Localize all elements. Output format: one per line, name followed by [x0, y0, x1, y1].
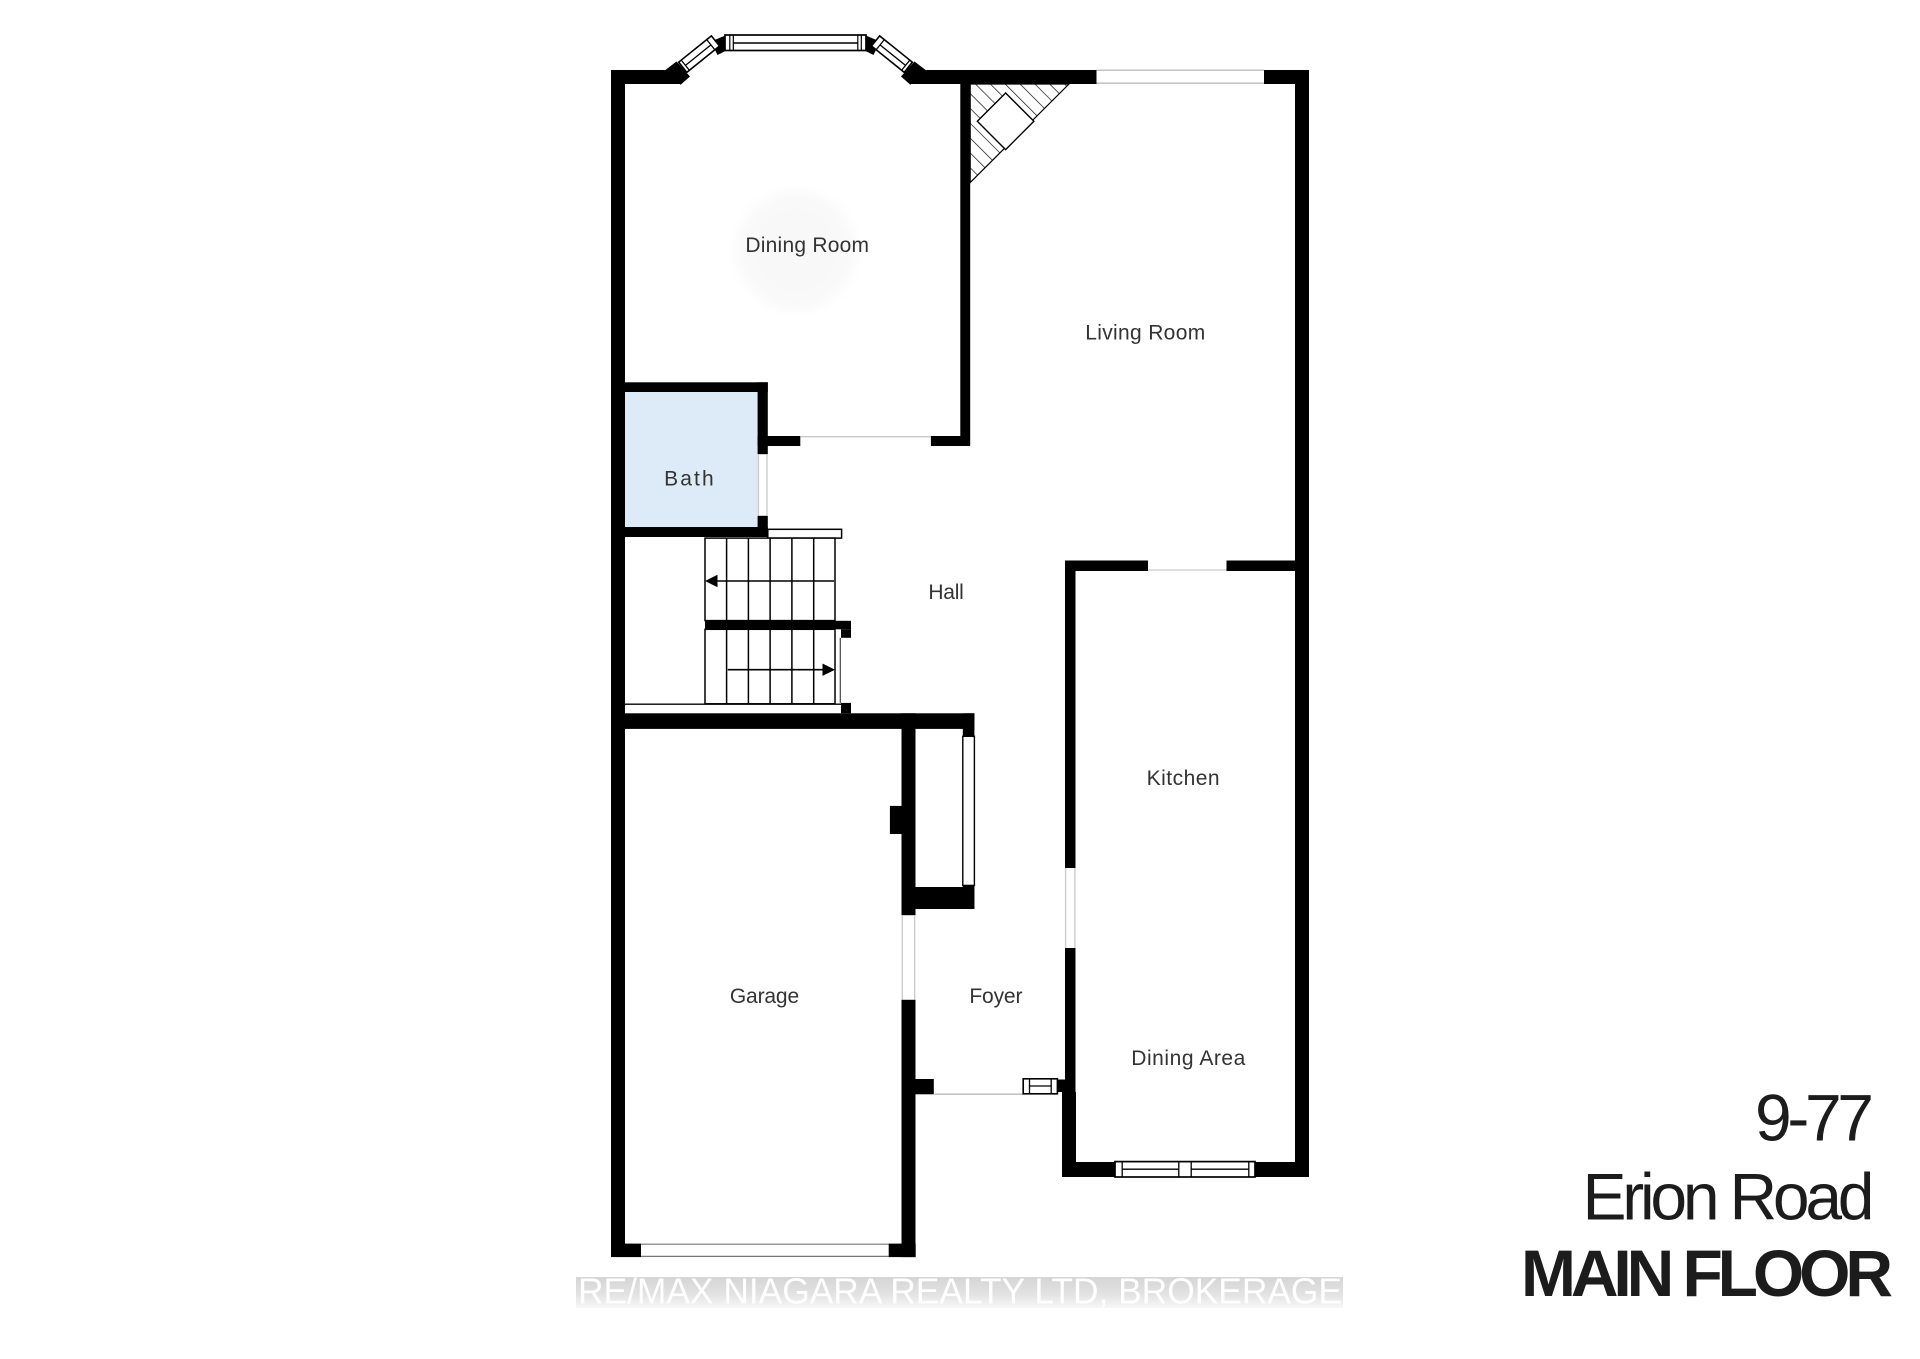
svg-text:Bath: Bath [664, 467, 714, 490]
svg-text:9-77: 9-77 [1755, 1081, 1874, 1155]
svg-text:Garage: Garage [730, 985, 799, 1008]
svg-text:Kitchen: Kitchen [1147, 767, 1220, 790]
svg-text:MAIN FLOOR: MAIN FLOOR [1521, 1236, 1893, 1310]
svg-text:Hall: Hall [928, 581, 963, 604]
svg-text:Living Room: Living Room [1085, 321, 1205, 344]
svg-text:Foyer: Foyer [969, 985, 1022, 1008]
svg-text:Dining Room: Dining Room [745, 234, 869, 257]
svg-text:Dining Area: Dining Area [1131, 1047, 1245, 1070]
svg-text:Erion Road: Erion Road [1583, 1160, 1875, 1234]
svg-text:RE/MAX NIAGARA REALTY LTD, BRO: RE/MAX NIAGARA REALTY LTD, BROKERAGE [578, 1271, 1342, 1312]
